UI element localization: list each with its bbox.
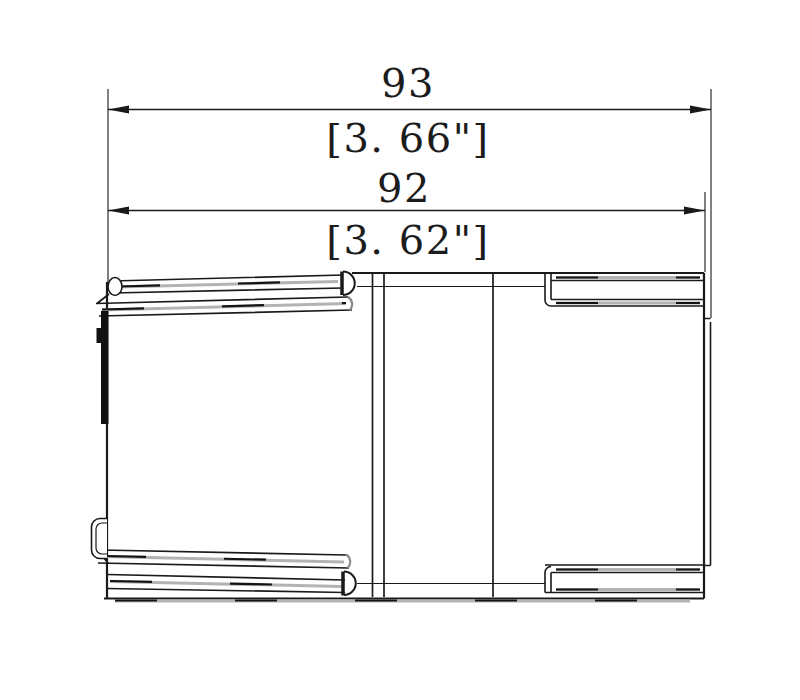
part-top-view	[92, 272, 711, 602]
left-edge-black-bar	[97, 311, 109, 424]
dimension-92-mm-label: 92	[377, 165, 431, 211]
rail-end-caps-dark	[342, 272, 343, 596]
left-edge-bump-outer	[92, 519, 108, 559]
center-vertical-lines	[373, 274, 494, 597]
part-body-outline	[104, 273, 704, 599]
center-inner-lines	[357, 287, 545, 584]
drawing-canvas: 93 [3. 66"] 92 [3. 62"]	[0, 0, 800, 700]
left-rail-outlines	[96, 275, 352, 593]
dimension-93-inch-label: [3. 66"]	[326, 115, 489, 161]
rail-left-end-loop	[108, 278, 122, 296]
technical-drawing: 93 [3. 66"] 92 [3. 62"]	[0, 0, 800, 700]
rail-end-caps-gray	[346, 297, 352, 568]
dimension-labels: 93 [3. 66"] 92 [3. 62"]	[326, 60, 489, 263]
rail-end-caps-arcs	[343, 272, 356, 596]
dimension-92-inch-label: [3. 62"]	[326, 217, 489, 263]
dimension-93-mm-label: 93	[381, 60, 435, 106]
